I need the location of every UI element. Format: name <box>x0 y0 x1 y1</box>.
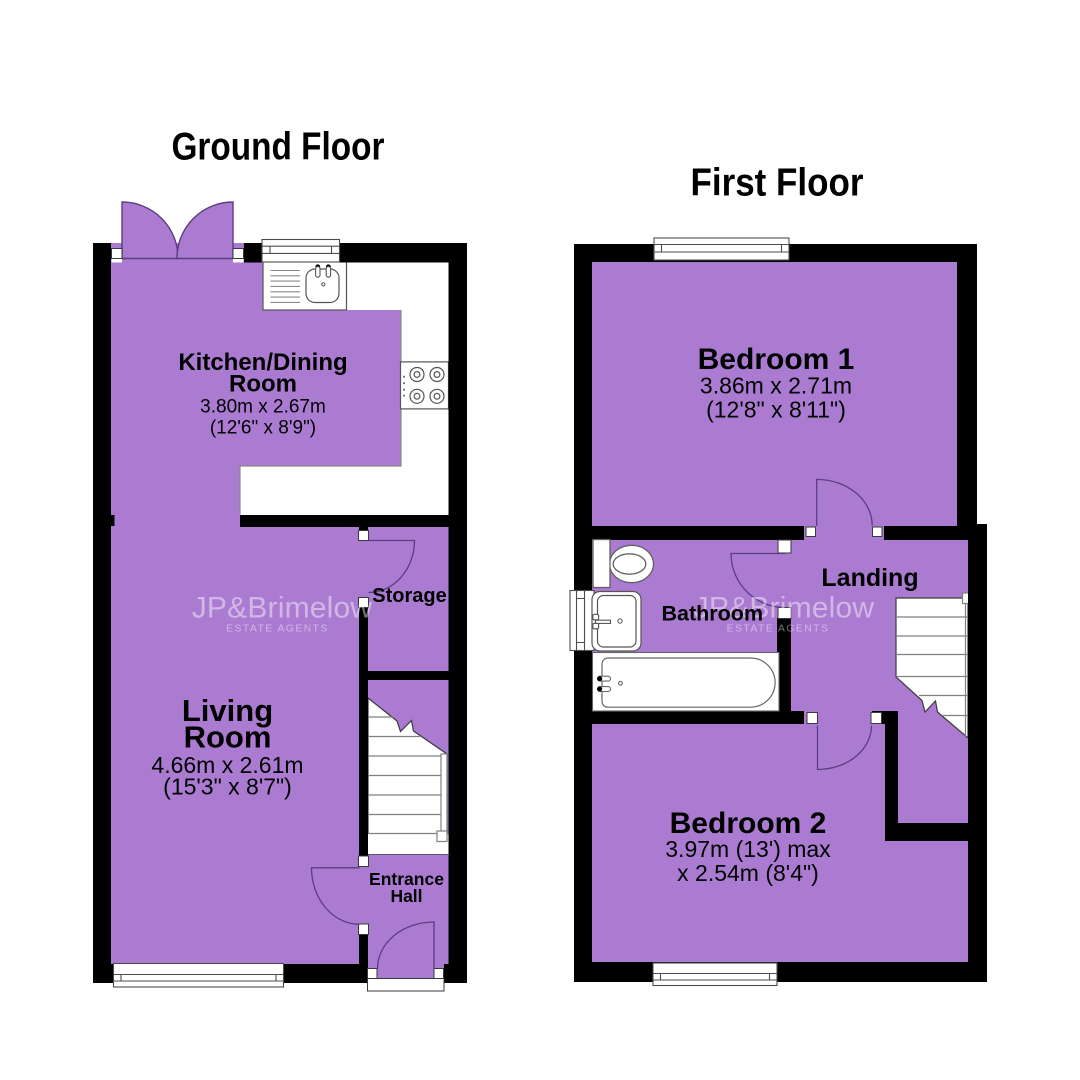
svg-text:Bedroom 1: Bedroom 1 <box>698 343 855 376</box>
svg-text:(12'8" x 8'11"): (12'8" x 8'11") <box>706 397 846 423</box>
svg-text:Storage: Storage <box>372 585 446 607</box>
svg-text:Bathroom: Bathroom <box>662 602 764 626</box>
svg-text:3.97m (13') max: 3.97m (13') max <box>665 836 831 862</box>
svg-text:(12'6" x 8'9"): (12'6" x 8'9") <box>210 418 316 439</box>
svg-text:Hall: Hall <box>390 886 422 906</box>
svg-text:JP&Brimelow: JP&Brimelow <box>192 592 373 625</box>
svg-text:Room: Room <box>229 371 297 398</box>
svg-text:(15'3" x 8'7"): (15'3" x 8'7") <box>163 774 292 800</box>
svg-text:3.86m x 2.71m: 3.86m x 2.71m <box>700 373 852 399</box>
svg-text:First Floor: First Floor <box>691 162 864 205</box>
svg-text:Ground Floor: Ground Floor <box>172 126 385 169</box>
svg-text:x 2.54m (8'4"): x 2.54m (8'4") <box>677 860 819 886</box>
svg-text:Room: Room <box>184 720 272 755</box>
svg-text:3.80m x 2.67m: 3.80m x 2.67m <box>200 397 326 418</box>
svg-text:ESTATE AGENTS: ESTATE AGENTS <box>226 624 329 635</box>
svg-text:Landing: Landing <box>821 564 918 592</box>
